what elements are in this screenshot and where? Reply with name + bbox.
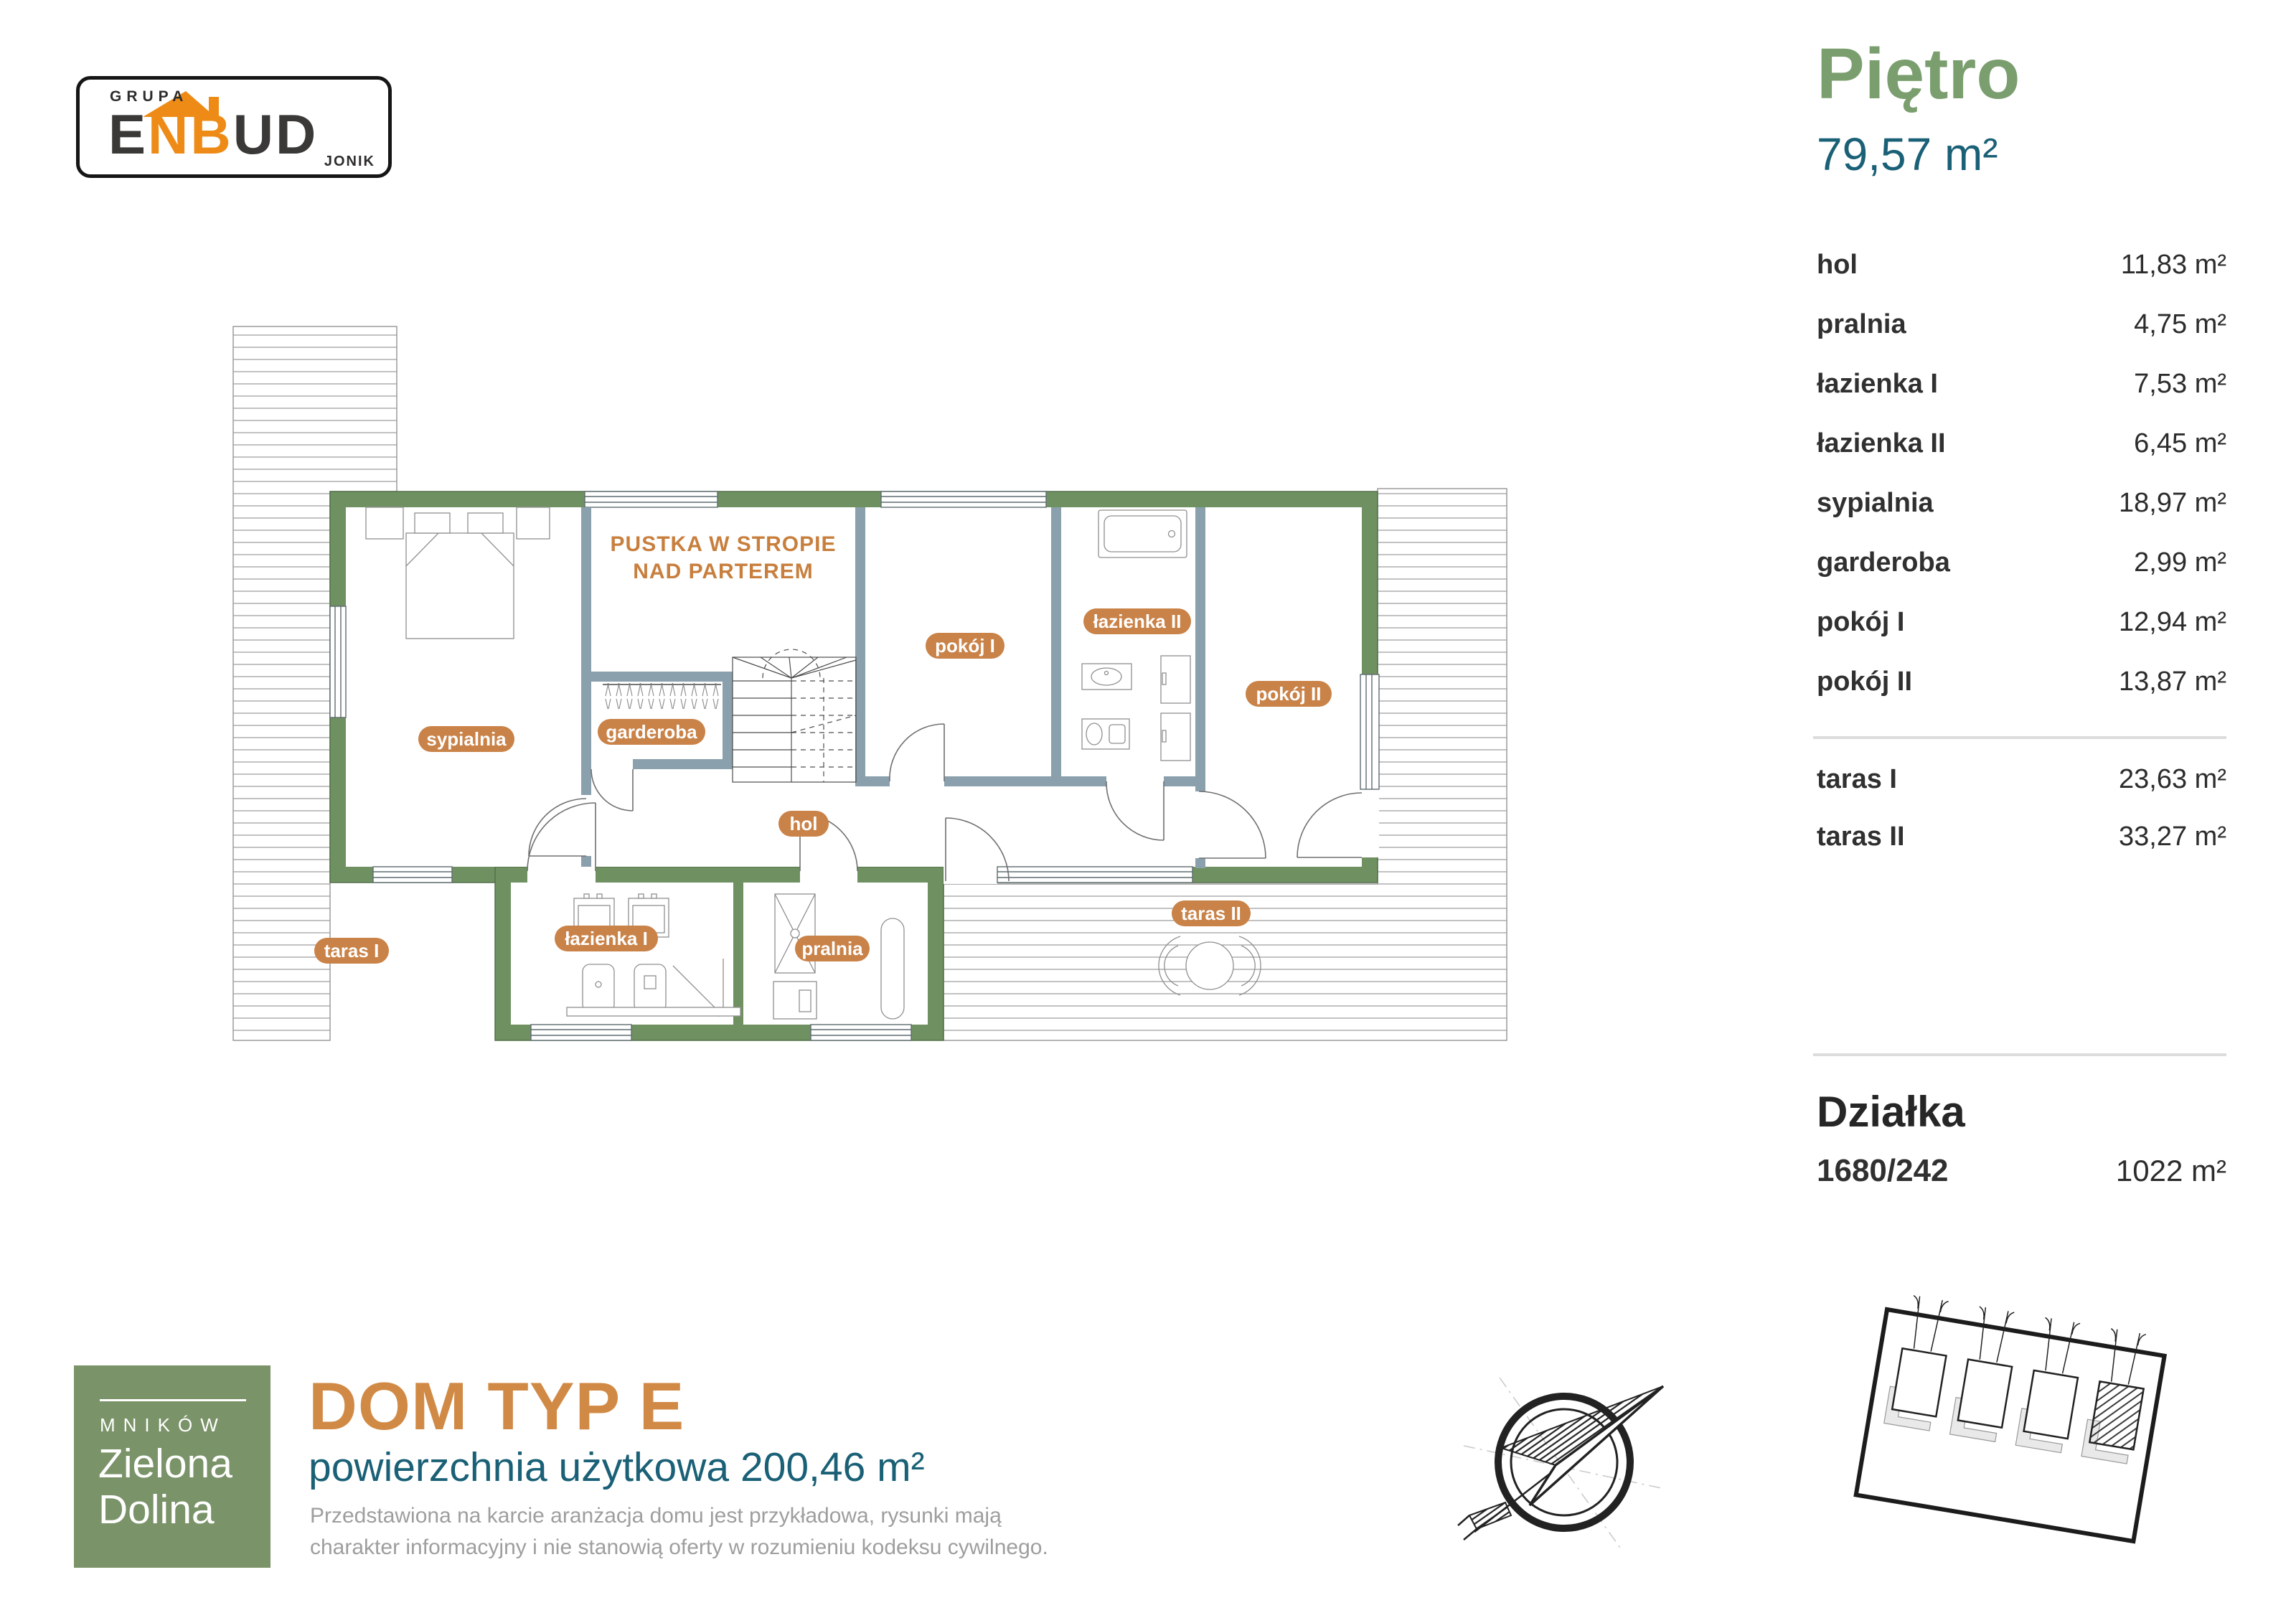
terrace-area: 23,63 m² bbox=[2119, 764, 2226, 795]
terrace-area: 33,27 m² bbox=[2119, 822, 2226, 852]
house-type-title: DOM TYP E bbox=[309, 1368, 684, 1445]
void-label-line1: PUSTKA W STROPIE bbox=[611, 532, 837, 556]
room-area: 7,53 m² bbox=[2134, 369, 2226, 400]
room-area: 6,45 m² bbox=[2134, 428, 2226, 459]
room-name: garderoba bbox=[1817, 547, 1950, 578]
north-arrow-icon bbox=[1449, 1349, 1679, 1579]
usable-area-subtitle: powierzchnia użytkowa 200,46 m² bbox=[309, 1444, 925, 1491]
room-name: łazienka I bbox=[1817, 369, 1938, 400]
disclaimer-line1: Przedstawiona na karcie aranżacja domu j… bbox=[310, 1504, 1002, 1528]
label-sypialnia: sypialnia bbox=[426, 728, 507, 750]
terrace-name: taras I bbox=[1817, 764, 1897, 795]
plot-area: 1022 m² bbox=[2116, 1154, 2226, 1188]
area-row-garderoba: garderoba2,99 m² bbox=[1817, 533, 2226, 593]
room-area: 4,75 m² bbox=[2134, 309, 2226, 340]
label-hol: hol bbox=[790, 813, 818, 834]
area-row-lazienka-1: łazienka I7,53 m² bbox=[1817, 354, 2226, 414]
room-area: 2,99 m² bbox=[2134, 547, 2226, 578]
terrace-name: taras II bbox=[1817, 822, 1905, 852]
plot-location-sketch bbox=[1837, 1277, 2239, 1593]
label-taras-2: taras II bbox=[1181, 903, 1241, 924]
floor-title: Piętro bbox=[1817, 34, 2020, 113]
zielona-dolina-badge: MNIKÓW Zielona Dolina bbox=[74, 1365, 270, 1568]
badge-brand-line1: Zielona bbox=[98, 1440, 232, 1487]
badge-location: MNIKÓW bbox=[100, 1414, 226, 1436]
room-name: łazienka II bbox=[1817, 428, 1946, 459]
area-row-sypialnia: sypialnia18,97 m² bbox=[1817, 474, 2226, 533]
label-taras-1: taras I bbox=[324, 940, 380, 961]
logo-letters-ud: UD bbox=[233, 103, 319, 166]
room-name: pralnia bbox=[1817, 309, 1906, 340]
divider-top bbox=[1813, 736, 2226, 739]
area-row-lazienka-2: łazienka II6,45 m² bbox=[1817, 414, 2226, 474]
label-pokoj-2: pokój II bbox=[1256, 683, 1322, 705]
logo-enbud-text: ENBUD bbox=[108, 104, 318, 164]
divider-bottom bbox=[1813, 1053, 2226, 1056]
area-row-taras-1: taras I23,63 m² bbox=[1817, 751, 2226, 808]
enbud-logo: GRUPA ENBUD JONIK bbox=[76, 76, 392, 178]
label-garderoba: garderoba bbox=[606, 721, 697, 743]
floor-total-area: 79,57 m² bbox=[1817, 128, 1998, 181]
label-lazienka-2: łazienka II bbox=[1093, 611, 1182, 632]
label-lazienka-1: łazienka I bbox=[565, 928, 648, 949]
room-area: 12,94 m² bbox=[2119, 607, 2226, 638]
room-name: pokój II bbox=[1817, 667, 1912, 697]
room-name: sypialnia bbox=[1817, 488, 1934, 519]
room-name: hol bbox=[1817, 250, 1858, 281]
room-area: 11,83 m² bbox=[2121, 250, 2226, 281]
plot-title: Działka bbox=[1817, 1087, 1965, 1137]
logo-letters-nb: NB bbox=[148, 103, 233, 166]
room-area: 13,87 m² bbox=[2119, 667, 2226, 697]
badge-brand-line2: Dolina bbox=[98, 1486, 215, 1533]
badge-rule bbox=[100, 1399, 246, 1401]
area-row-pokoj-2: pokój II13,87 m² bbox=[1817, 652, 2226, 712]
label-pralnia: pralnia bbox=[801, 938, 863, 959]
area-row-taras-2: taras II33,27 m² bbox=[1817, 808, 2226, 865]
area-row-hol: hol11,83 m² bbox=[1817, 235, 2226, 295]
area-row-pralnia: pralnia4,75 m² bbox=[1817, 295, 2226, 354]
logo-letter-e: E bbox=[108, 103, 148, 166]
room-name: pokój I bbox=[1817, 607, 1904, 638]
label-pokoj-1: pokój I bbox=[935, 635, 995, 657]
plot-row: 1680/242 1022 m² bbox=[1817, 1148, 2226, 1194]
terrace-area-list: taras I23,63 m² taras II33,27 m² bbox=[1817, 751, 2226, 865]
room-area: 18,97 m² bbox=[2119, 488, 2226, 519]
logo-jonik-text: JONIK bbox=[324, 154, 375, 170]
room-area-list: hol11,83 m² pralnia4,75 m² łazienka I7,5… bbox=[1817, 235, 2226, 712]
floor-plan: PUSTKA W STROPIE NAD PARTEREM sypialnia … bbox=[215, 309, 1550, 1069]
plot-number: 1680/242 bbox=[1817, 1153, 1949, 1189]
disclaimer-line2: charakter informacyjny i nie stanowią of… bbox=[310, 1535, 1048, 1560]
area-row-pokoj-1: pokój I12,94 m² bbox=[1817, 593, 2226, 652]
void-label-line2: NAD PARTEREM bbox=[633, 560, 813, 583]
